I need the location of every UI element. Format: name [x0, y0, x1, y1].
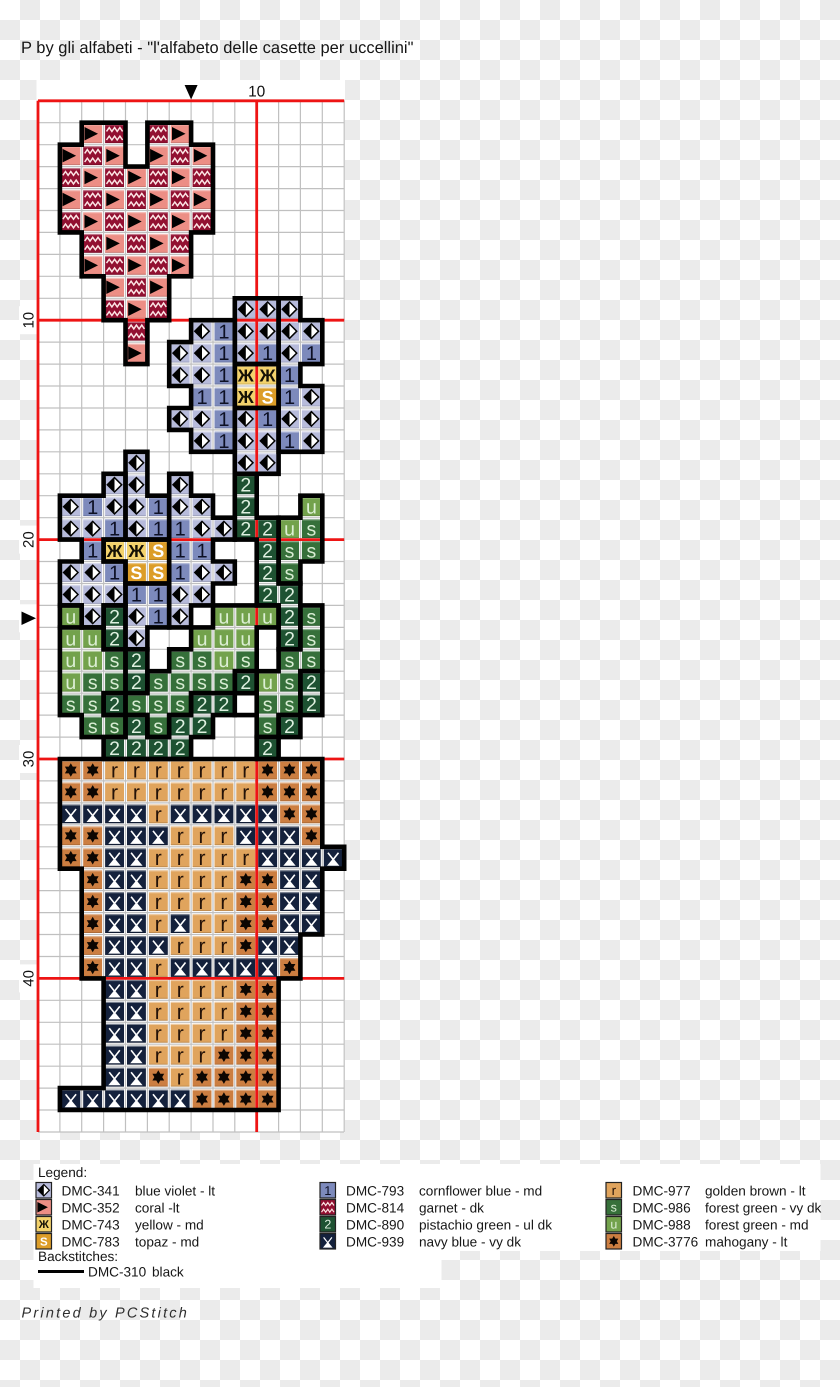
- svg-text:r: r: [133, 781, 140, 804]
- svg-text:u: u: [240, 606, 251, 628]
- svg-text:r: r: [155, 891, 162, 914]
- svg-text:s: s: [153, 694, 163, 716]
- svg-text:r: r: [111, 781, 118, 804]
- svg-text:Ж: Ж: [237, 365, 254, 385]
- svg-text:r: r: [199, 979, 206, 1002]
- svg-text:Ж: Ж: [259, 365, 276, 385]
- svg-text:u: u: [218, 628, 229, 650]
- svg-text:DMC-988: DMC-988: [633, 1217, 691, 1232]
- svg-text:2: 2: [284, 716, 295, 738]
- svg-text:cornflower blue - md: cornflower blue - md: [419, 1183, 542, 1198]
- svg-text:r: r: [612, 1183, 617, 1198]
- svg-text:blue violet - lt: blue violet - lt: [135, 1183, 215, 1198]
- svg-text:s: s: [285, 672, 295, 694]
- svg-text:r: r: [199, 781, 206, 804]
- svg-text:s: s: [110, 650, 120, 672]
- svg-text:DMC-793: DMC-793: [346, 1183, 404, 1198]
- svg-text:DMC-977: DMC-977: [633, 1183, 691, 1198]
- svg-text:2: 2: [197, 716, 208, 738]
- svg-text:u: u: [262, 672, 273, 694]
- svg-text:s: s: [175, 650, 185, 672]
- svg-text:DMC-814: DMC-814: [346, 1200, 405, 1215]
- svg-text:Ж: Ж: [38, 1219, 50, 1231]
- svg-text:s: s: [153, 716, 163, 738]
- svg-text:Ж: Ж: [127, 541, 144, 561]
- svg-text:s: s: [175, 672, 185, 694]
- svg-text:r: r: [199, 913, 206, 936]
- svg-text:r: r: [242, 847, 249, 870]
- svg-text:10: 10: [21, 312, 38, 329]
- svg-text:r: r: [199, 1023, 206, 1046]
- svg-text:forest green - vy dk: forest green - vy dk: [705, 1200, 822, 1215]
- svg-text:2: 2: [240, 497, 251, 519]
- svg-text:r: r: [220, 759, 227, 782]
- svg-text:2: 2: [306, 672, 317, 694]
- svg-text:s: s: [307, 606, 317, 628]
- svg-text:2: 2: [131, 650, 142, 672]
- svg-text:s: s: [611, 1201, 617, 1215]
- svg-text:navy blue - vy dk: navy blue - vy dk: [419, 1234, 521, 1249]
- svg-text:40: 40: [21, 970, 38, 987]
- svg-text:1: 1: [153, 585, 164, 607]
- svg-text:s: s: [307, 519, 317, 541]
- svg-text:r: r: [220, 825, 227, 848]
- svg-text:1: 1: [175, 563, 186, 585]
- svg-text:1: 1: [109, 563, 120, 585]
- svg-text:1: 1: [218, 409, 229, 431]
- svg-text:2: 2: [240, 672, 251, 694]
- svg-text:r: r: [177, 1067, 184, 1090]
- svg-text:DMC-890: DMC-890: [346, 1217, 405, 1232]
- svg-text:r: r: [177, 847, 184, 870]
- svg-text:r: r: [199, 935, 206, 958]
- svg-text:DMC-310: DMC-310: [88, 1265, 147, 1280]
- svg-text:1: 1: [324, 1183, 331, 1198]
- svg-text:S: S: [40, 1236, 48, 1248]
- svg-text:r: r: [155, 979, 162, 1002]
- svg-text:u: u: [610, 1218, 617, 1232]
- svg-text:u: u: [284, 519, 295, 541]
- svg-text:u: u: [87, 650, 98, 672]
- svg-text:DMC-783: DMC-783: [62, 1234, 120, 1249]
- svg-text:1: 1: [196, 387, 207, 409]
- svg-text:1: 1: [218, 365, 229, 387]
- svg-text:DMC-939: DMC-939: [346, 1234, 404, 1249]
- svg-text:1: 1: [218, 343, 229, 365]
- svg-text:1: 1: [87, 497, 98, 519]
- svg-text:20: 20: [21, 531, 38, 548]
- svg-text:s: s: [285, 650, 295, 672]
- svg-text:Backstitches:: Backstitches:: [38, 1249, 118, 1264]
- svg-text:r: r: [177, 935, 184, 958]
- svg-text:r: r: [242, 781, 249, 804]
- svg-text:r: r: [155, 759, 162, 782]
- svg-text:r: r: [177, 781, 184, 804]
- svg-text:s: s: [197, 672, 207, 694]
- svg-text:2: 2: [131, 716, 142, 738]
- svg-text:Ж: Ж: [237, 387, 254, 407]
- svg-text:r: r: [220, 935, 227, 958]
- svg-text:s: s: [197, 650, 207, 672]
- svg-text:r: r: [155, 1045, 162, 1068]
- svg-text:r: r: [220, 1001, 227, 1024]
- svg-text:S: S: [262, 387, 274, 407]
- svg-text:2: 2: [131, 672, 142, 694]
- svg-text:r: r: [220, 1023, 227, 1046]
- svg-text:r: r: [155, 781, 162, 804]
- svg-text:30: 30: [21, 751, 38, 768]
- svg-text:s: s: [88, 716, 98, 738]
- svg-text:r: r: [111, 759, 118, 782]
- svg-text:r: r: [199, 891, 206, 914]
- svg-text:r: r: [155, 803, 162, 826]
- svg-text:pistachio green - ul dk: pistachio green - ul dk: [419, 1217, 552, 1232]
- svg-text:s: s: [307, 628, 317, 650]
- svg-text:1: 1: [218, 321, 229, 343]
- svg-text:1: 1: [87, 541, 98, 563]
- svg-text:r: r: [177, 1023, 184, 1046]
- svg-text:u: u: [65, 650, 76, 672]
- svg-text:s: s: [285, 562, 295, 584]
- svg-text:1: 1: [175, 519, 186, 541]
- svg-text:r: r: [220, 869, 227, 892]
- svg-text:r: r: [199, 759, 206, 782]
- svg-text:r: r: [199, 847, 206, 870]
- svg-text:r: r: [220, 979, 227, 1002]
- svg-text:r: r: [220, 847, 227, 870]
- svg-text:P by gli alfabeti - "l'alfabet: P by gli alfabeti - "l'alfabeto delle ca…: [21, 39, 414, 57]
- svg-text:1: 1: [284, 365, 295, 387]
- svg-text:u: u: [197, 628, 208, 650]
- svg-text:r: r: [199, 869, 206, 892]
- svg-text:r: r: [199, 825, 206, 848]
- svg-text:mahogany - lt: mahogany - lt: [705, 1234, 788, 1249]
- svg-text:u: u: [65, 628, 76, 650]
- svg-text:DMC-341: DMC-341: [62, 1183, 120, 1198]
- svg-text:2: 2: [197, 694, 208, 716]
- svg-text:2: 2: [324, 1218, 331, 1232]
- svg-text:r: r: [199, 1001, 206, 1024]
- svg-text:2: 2: [262, 541, 273, 563]
- svg-text:r: r: [155, 869, 162, 892]
- svg-text:1: 1: [131, 585, 142, 607]
- svg-text:1: 1: [262, 409, 273, 431]
- svg-text:DMC-352: DMC-352: [62, 1200, 120, 1215]
- svg-text:garnet - dk: garnet - dk: [419, 1200, 484, 1215]
- svg-text:r: r: [220, 781, 227, 804]
- svg-text:2: 2: [284, 584, 295, 606]
- svg-text:s: s: [88, 672, 98, 694]
- svg-text:S: S: [130, 563, 142, 583]
- svg-text:coral -lt: coral -lt: [135, 1200, 180, 1215]
- svg-text:1: 1: [218, 387, 229, 409]
- svg-text:2: 2: [109, 606, 120, 628]
- svg-text:2: 2: [240, 475, 251, 497]
- svg-text:r: r: [155, 957, 162, 980]
- svg-text:r: r: [177, 869, 184, 892]
- svg-text:S: S: [152, 563, 164, 583]
- svg-text:black: black: [152, 1265, 184, 1280]
- svg-text:u: u: [306, 497, 317, 519]
- svg-text:s: s: [110, 716, 120, 738]
- svg-text:r: r: [199, 1045, 206, 1068]
- svg-text:u: u: [65, 606, 76, 628]
- svg-text:topaz - md: topaz - md: [135, 1234, 199, 1249]
- svg-text:u: u: [262, 606, 273, 628]
- svg-text:r: r: [155, 847, 162, 870]
- svg-text:r: r: [177, 1001, 184, 1024]
- svg-text:2: 2: [284, 606, 295, 628]
- svg-text:r: r: [242, 759, 249, 782]
- svg-text:r: r: [155, 913, 162, 936]
- svg-text:r: r: [155, 1023, 162, 1046]
- svg-text:Legend:: Legend:: [38, 1165, 87, 1180]
- svg-text:s: s: [110, 672, 120, 694]
- svg-text:DMC-3776: DMC-3776: [633, 1234, 699, 1249]
- svg-text:s: s: [285, 541, 295, 563]
- svg-text:u: u: [218, 650, 229, 672]
- svg-text:1: 1: [153, 497, 164, 519]
- svg-text:DMC-743: DMC-743: [62, 1217, 120, 1232]
- svg-text:2: 2: [262, 519, 273, 541]
- svg-text:s: s: [263, 716, 273, 738]
- svg-text:r: r: [220, 891, 227, 914]
- svg-text:S: S: [152, 541, 164, 561]
- svg-text:r: r: [220, 913, 227, 936]
- svg-text:Ж: Ж: [106, 541, 123, 561]
- svg-text:1: 1: [284, 387, 295, 409]
- svg-text:1: 1: [196, 541, 207, 563]
- svg-text:r: r: [177, 891, 184, 914]
- svg-text:forest green - md: forest green - md: [705, 1217, 809, 1232]
- svg-text:2: 2: [175, 716, 186, 738]
- svg-text:DMC-986: DMC-986: [633, 1200, 691, 1215]
- svg-text:yellow - md: yellow - md: [135, 1217, 204, 1232]
- svg-text:10: 10: [248, 84, 266, 101]
- svg-text:u: u: [218, 606, 229, 628]
- svg-text:u: u: [87, 628, 98, 650]
- svg-text:r: r: [155, 1001, 162, 1024]
- svg-text:Printed by PCStitch: Printed by PCStitch: [22, 1306, 190, 1322]
- svg-text:s: s: [219, 672, 229, 694]
- svg-text:r: r: [177, 825, 184, 848]
- svg-text:s: s: [88, 694, 98, 716]
- svg-text:r: r: [177, 1045, 184, 1068]
- svg-text:golden brown - lt: golden brown - lt: [705, 1183, 806, 1198]
- svg-text:s: s: [153, 672, 163, 694]
- svg-text:r: r: [177, 759, 184, 782]
- svg-text:1: 1: [175, 541, 186, 563]
- svg-text:r: r: [133, 759, 140, 782]
- svg-text:r: r: [177, 979, 184, 1002]
- svg-text:u: u: [65, 672, 76, 694]
- svg-text:s: s: [263, 694, 273, 716]
- svg-text:u: u: [240, 628, 251, 650]
- svg-text:2: 2: [262, 562, 273, 584]
